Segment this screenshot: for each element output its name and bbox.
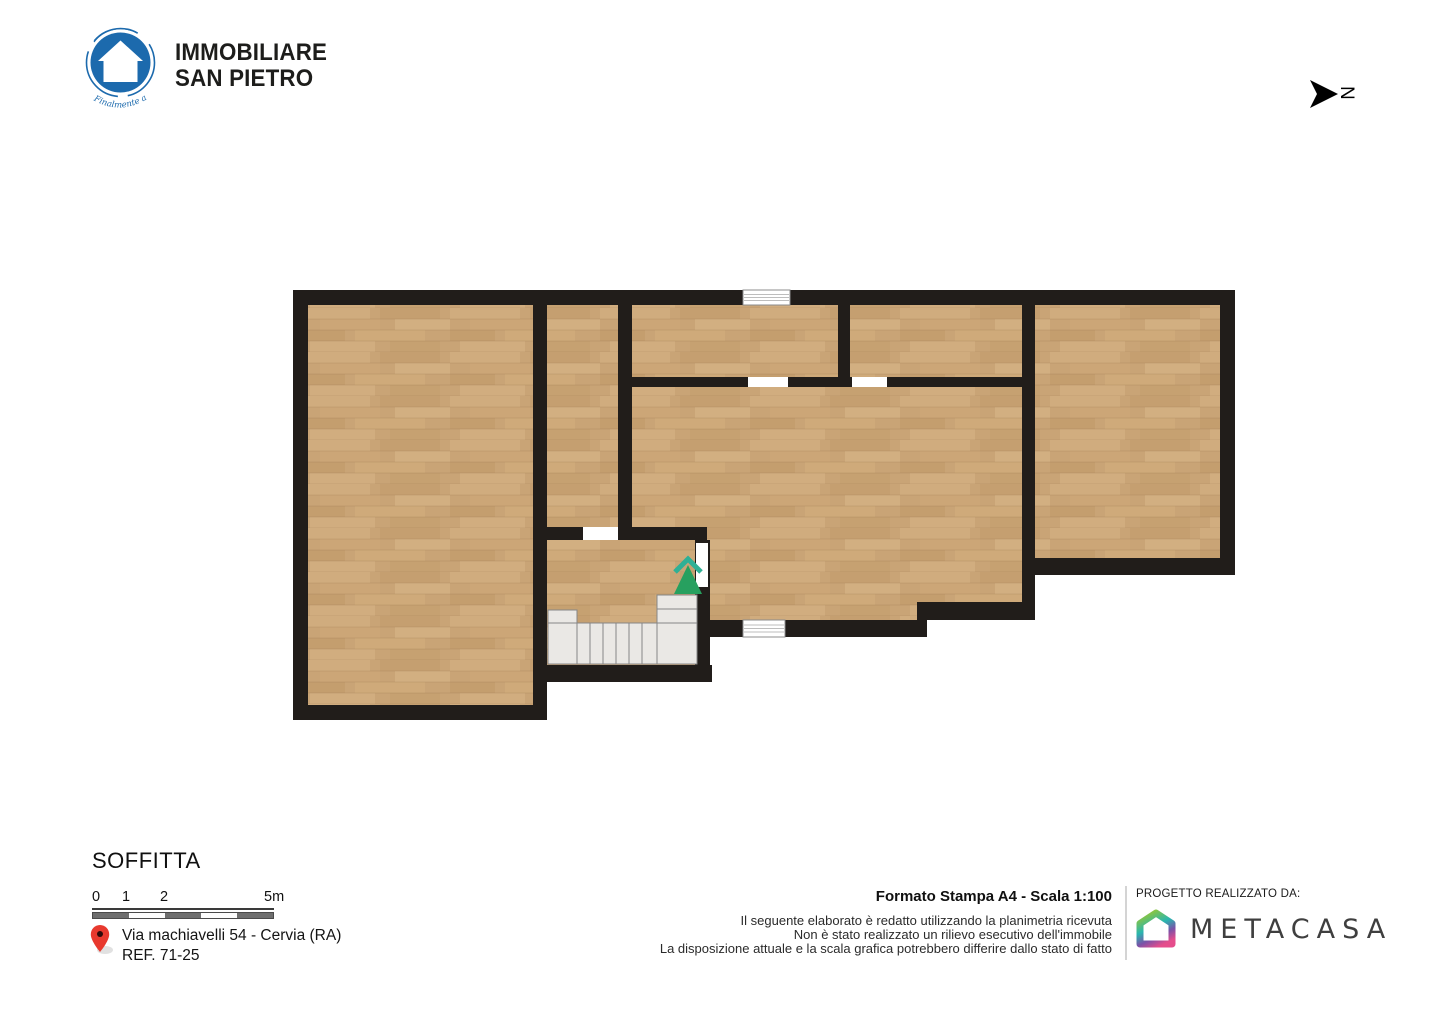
wall-central-bottom <box>705 620 927 637</box>
scale-label-5m: 5m <box>264 889 284 905</box>
scale-bar: 0 1 2 5m <box>92 889 292 919</box>
room-right-floor <box>1035 305 1220 558</box>
scale-bar-ruler <box>92 908 274 919</box>
north-letter: N <box>1336 86 1356 100</box>
floor-title: SOFFITTA <box>92 848 201 874</box>
room-corridor-floor <box>547 305 618 527</box>
stair-landing-right-top <box>657 595 697 609</box>
wall-bottom-left <box>293 705 545 720</box>
room-left-floor <box>308 305 533 705</box>
address-ref: REF. 71-25 <box>122 946 341 966</box>
agency-name-line1: IMMOBILIARE <box>175 40 327 66</box>
print-format: Formato Stampa A4 - Scala 1:100 <box>492 888 1112 905</box>
print-info: Formato Stampa A4 - Scala 1:100 Il segue… <box>492 888 1112 955</box>
door-central-top-a <box>748 377 788 387</box>
north-arrow-head <box>1310 80 1338 108</box>
address-line1: Via machiavelli 54 - Cervia (RA) <box>122 926 341 946</box>
location-pin-icon <box>90 924 114 960</box>
agency-logo: Finalmente a Casa IMMOBILIARE SAN PIETRO <box>82 24 339 116</box>
footer-divider <box>1125 886 1127 960</box>
wall-central-bottom-step <box>917 602 1035 620</box>
disclaimer-line1: Il seguente elaborato è redatto utilizza… <box>492 914 1112 928</box>
agency-logo-icon: Finalmente a Casa <box>82 24 167 116</box>
address-block: Via machiavelli 54 - Cervia (RA) REF. 71… <box>90 924 341 965</box>
disclaimer-line2: Non è stato realizzato un rilievo esecut… <box>492 928 1112 942</box>
credit-block: PROGETTO REALIZZATO DA: METACASA <box>1136 888 1392 949</box>
wall-right <box>1220 290 1235 575</box>
wall-central-horizontal <box>628 377 1035 387</box>
stair-treads <box>577 623 657 664</box>
stair-landing-left-top <box>548 610 577 623</box>
metacasa-house-icon <box>1136 909 1176 949</box>
room-top-b-floor <box>850 305 1022 377</box>
wall-left <box>293 290 308 720</box>
floor-plan <box>280 280 1250 730</box>
room-floors <box>308 305 1220 705</box>
door-central-top-b <box>852 377 887 387</box>
wall-stair-top <box>533 527 707 540</box>
wall-right-bottom <box>1022 558 1235 575</box>
door-stair-central <box>696 543 708 587</box>
agency-name-line2: SAN PIETRO <box>175 66 327 92</box>
wall-top-rooms-divider <box>838 305 850 377</box>
stair-landing-left <box>548 623 577 664</box>
agency-name: IMMOBILIARE SAN PIETRO <box>175 40 327 92</box>
wall-stair-bottom <box>533 665 712 682</box>
credit-brand: METACASA <box>1190 914 1392 945</box>
door-corridor-stair <box>583 527 618 540</box>
stair-landing-right <box>657 623 697 664</box>
scale-label-0: 0 <box>92 889 100 905</box>
stair-landing-right-mid <box>657 609 697 623</box>
wall-corridor-divider <box>618 305 632 540</box>
north-arrow-icon: N <box>1308 74 1356 116</box>
scale-bar-labels: 0 1 2 5m <box>92 889 292 906</box>
scale-label-1: 1 <box>122 889 130 905</box>
disclaimer-line3: La disposizione attuale e la scala grafi… <box>492 942 1112 956</box>
wall-left-room-divider <box>533 305 547 720</box>
room-top-a-floor <box>632 305 838 377</box>
scale-label-2: 2 <box>160 889 168 905</box>
credit-label: PROGETTO REALIZZATO DA: <box>1136 888 1392 900</box>
